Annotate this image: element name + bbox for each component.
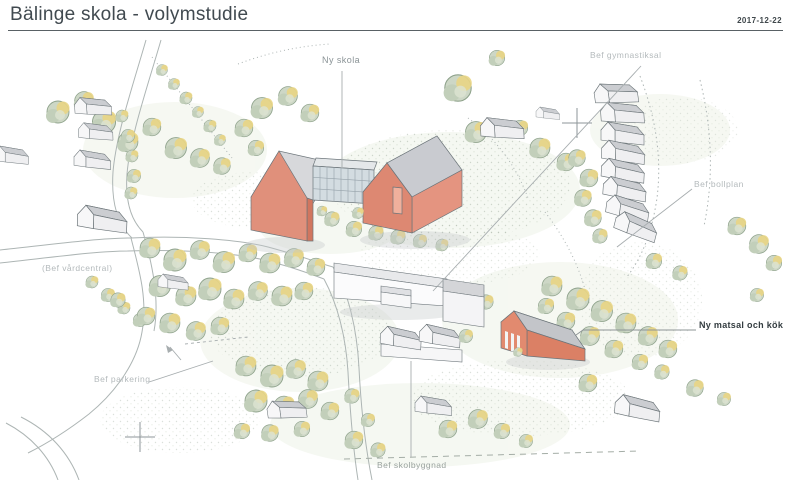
label-bef-gymnastiksal: Bef gymnastiksal xyxy=(590,50,661,60)
label-ny-skola: Ny skola xyxy=(322,55,360,65)
slide: Bälinge skola - volymstudie 2017-12-22 N… xyxy=(0,0,790,480)
site-illustration xyxy=(0,0,790,480)
date-label: 2017-12-22 xyxy=(737,16,782,25)
leader-parkering-arrow xyxy=(170,347,181,360)
page-title: Bälinge skola - volymstudie xyxy=(10,4,248,26)
header: Bälinge skola - volymstudie 2017-12-22 xyxy=(8,0,783,31)
label-bef-bollplan: Bef bollplan xyxy=(694,179,744,189)
label-ny-matsal-och-kok: Ny matsal och kök xyxy=(699,320,783,330)
building-vardcentral xyxy=(77,205,127,233)
leader-bef-parkering xyxy=(149,361,213,382)
label-bef-skolbyggnad: Bef skolbyggnad xyxy=(377,460,447,470)
label-bef-parkering: Bef parkering xyxy=(94,374,150,384)
label-bef-vardcentral: (Bef vårdcentral) xyxy=(42,263,112,273)
